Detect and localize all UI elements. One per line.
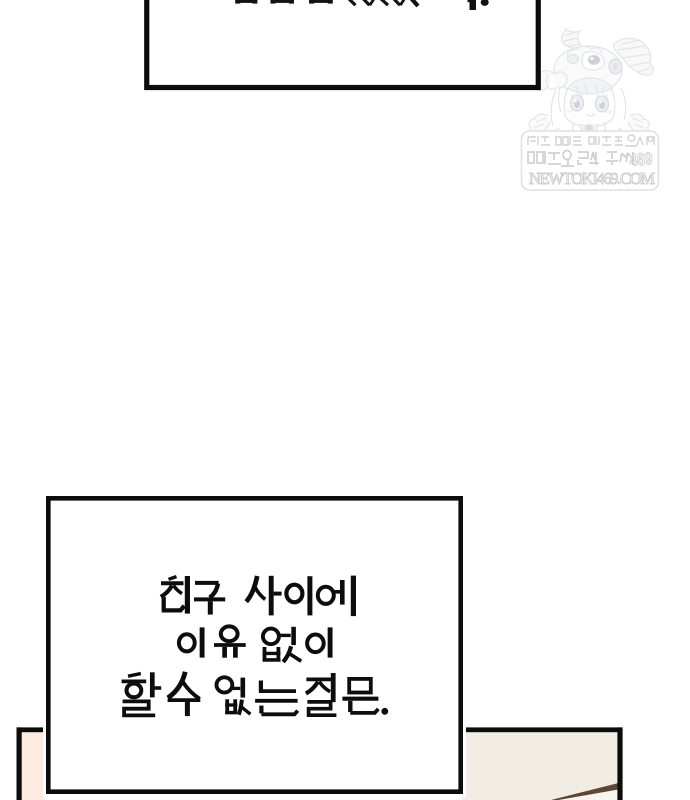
svg-text:NEWTOKI469.COM: NEWTOKI469.COM [529, 169, 655, 188]
svg-text:469: 469 [629, 149, 654, 170]
